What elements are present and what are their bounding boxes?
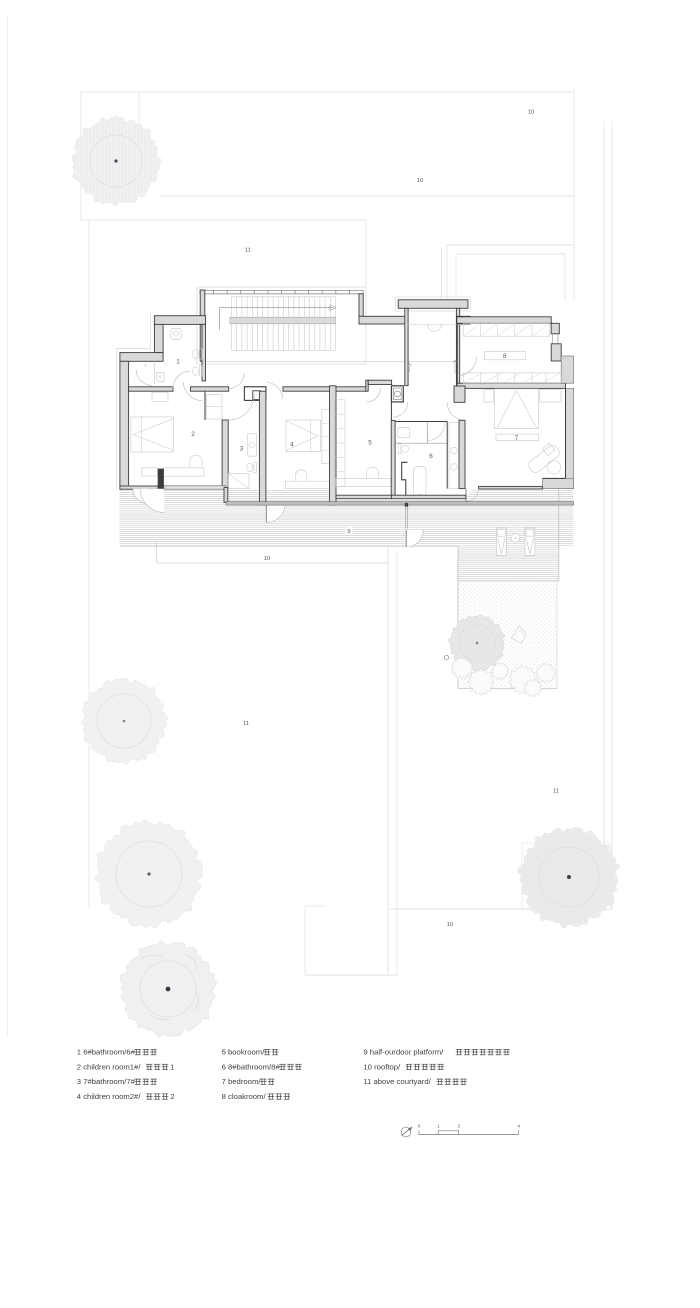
svg-text:10: 10 xyxy=(528,110,534,116)
svg-text:4: 4 xyxy=(290,442,294,449)
svg-text:2: 2 xyxy=(458,1124,461,1129)
svg-text:9: 9 xyxy=(347,529,350,535)
svg-text:6: 6 xyxy=(429,453,433,460)
svg-text:2: 2 xyxy=(191,431,195,438)
svg-text:11 above courtyard/: 11 above courtyard/ xyxy=(363,1077,431,1086)
svg-text:4 children room2#/: 4 children room2#/ xyxy=(77,1092,142,1101)
svg-text:9 half-ourdoor platform/: 9 half-ourdoor platform/ xyxy=(363,1048,444,1057)
svg-text:10: 10 xyxy=(447,922,453,928)
svg-text:4: 4 xyxy=(518,1124,521,1129)
svg-text:6 8#bathroom/8#: 6 8#bathroom/8# xyxy=(222,1062,281,1071)
svg-text:8 cloakroom/: 8 cloakroom/ xyxy=(222,1092,267,1101)
svg-text:1: 1 xyxy=(437,1124,440,1129)
svg-text:1 6#bathroom/6#: 1 6#bathroom/6# xyxy=(77,1048,136,1057)
svg-text:10: 10 xyxy=(264,556,270,562)
svg-text:2: 2 xyxy=(170,1092,174,1101)
svg-text:11: 11 xyxy=(553,789,559,795)
svg-text:3: 3 xyxy=(240,446,244,453)
svg-text:1: 1 xyxy=(176,359,180,366)
svg-text:7 bedroom/: 7 bedroom/ xyxy=(222,1077,262,1086)
svg-text:8: 8 xyxy=(503,353,507,360)
svg-text:0: 0 xyxy=(418,1124,421,1129)
svg-text:3 7#bathroom/7#: 3 7#bathroom/7# xyxy=(77,1077,136,1086)
svg-text:5 bookroom/: 5 bookroom/ xyxy=(222,1048,266,1057)
svg-text:5: 5 xyxy=(368,440,372,447)
svg-text:11: 11 xyxy=(243,721,249,727)
svg-text:1: 1 xyxy=(170,1062,174,1071)
svg-text:2 children room1#/: 2 children room1#/ xyxy=(77,1062,142,1071)
svg-text:10 rooftop/: 10 rooftop/ xyxy=(363,1062,401,1071)
svg-text:10: 10 xyxy=(417,178,423,184)
svg-text:11: 11 xyxy=(245,248,251,254)
svg-text:7: 7 xyxy=(515,435,519,442)
